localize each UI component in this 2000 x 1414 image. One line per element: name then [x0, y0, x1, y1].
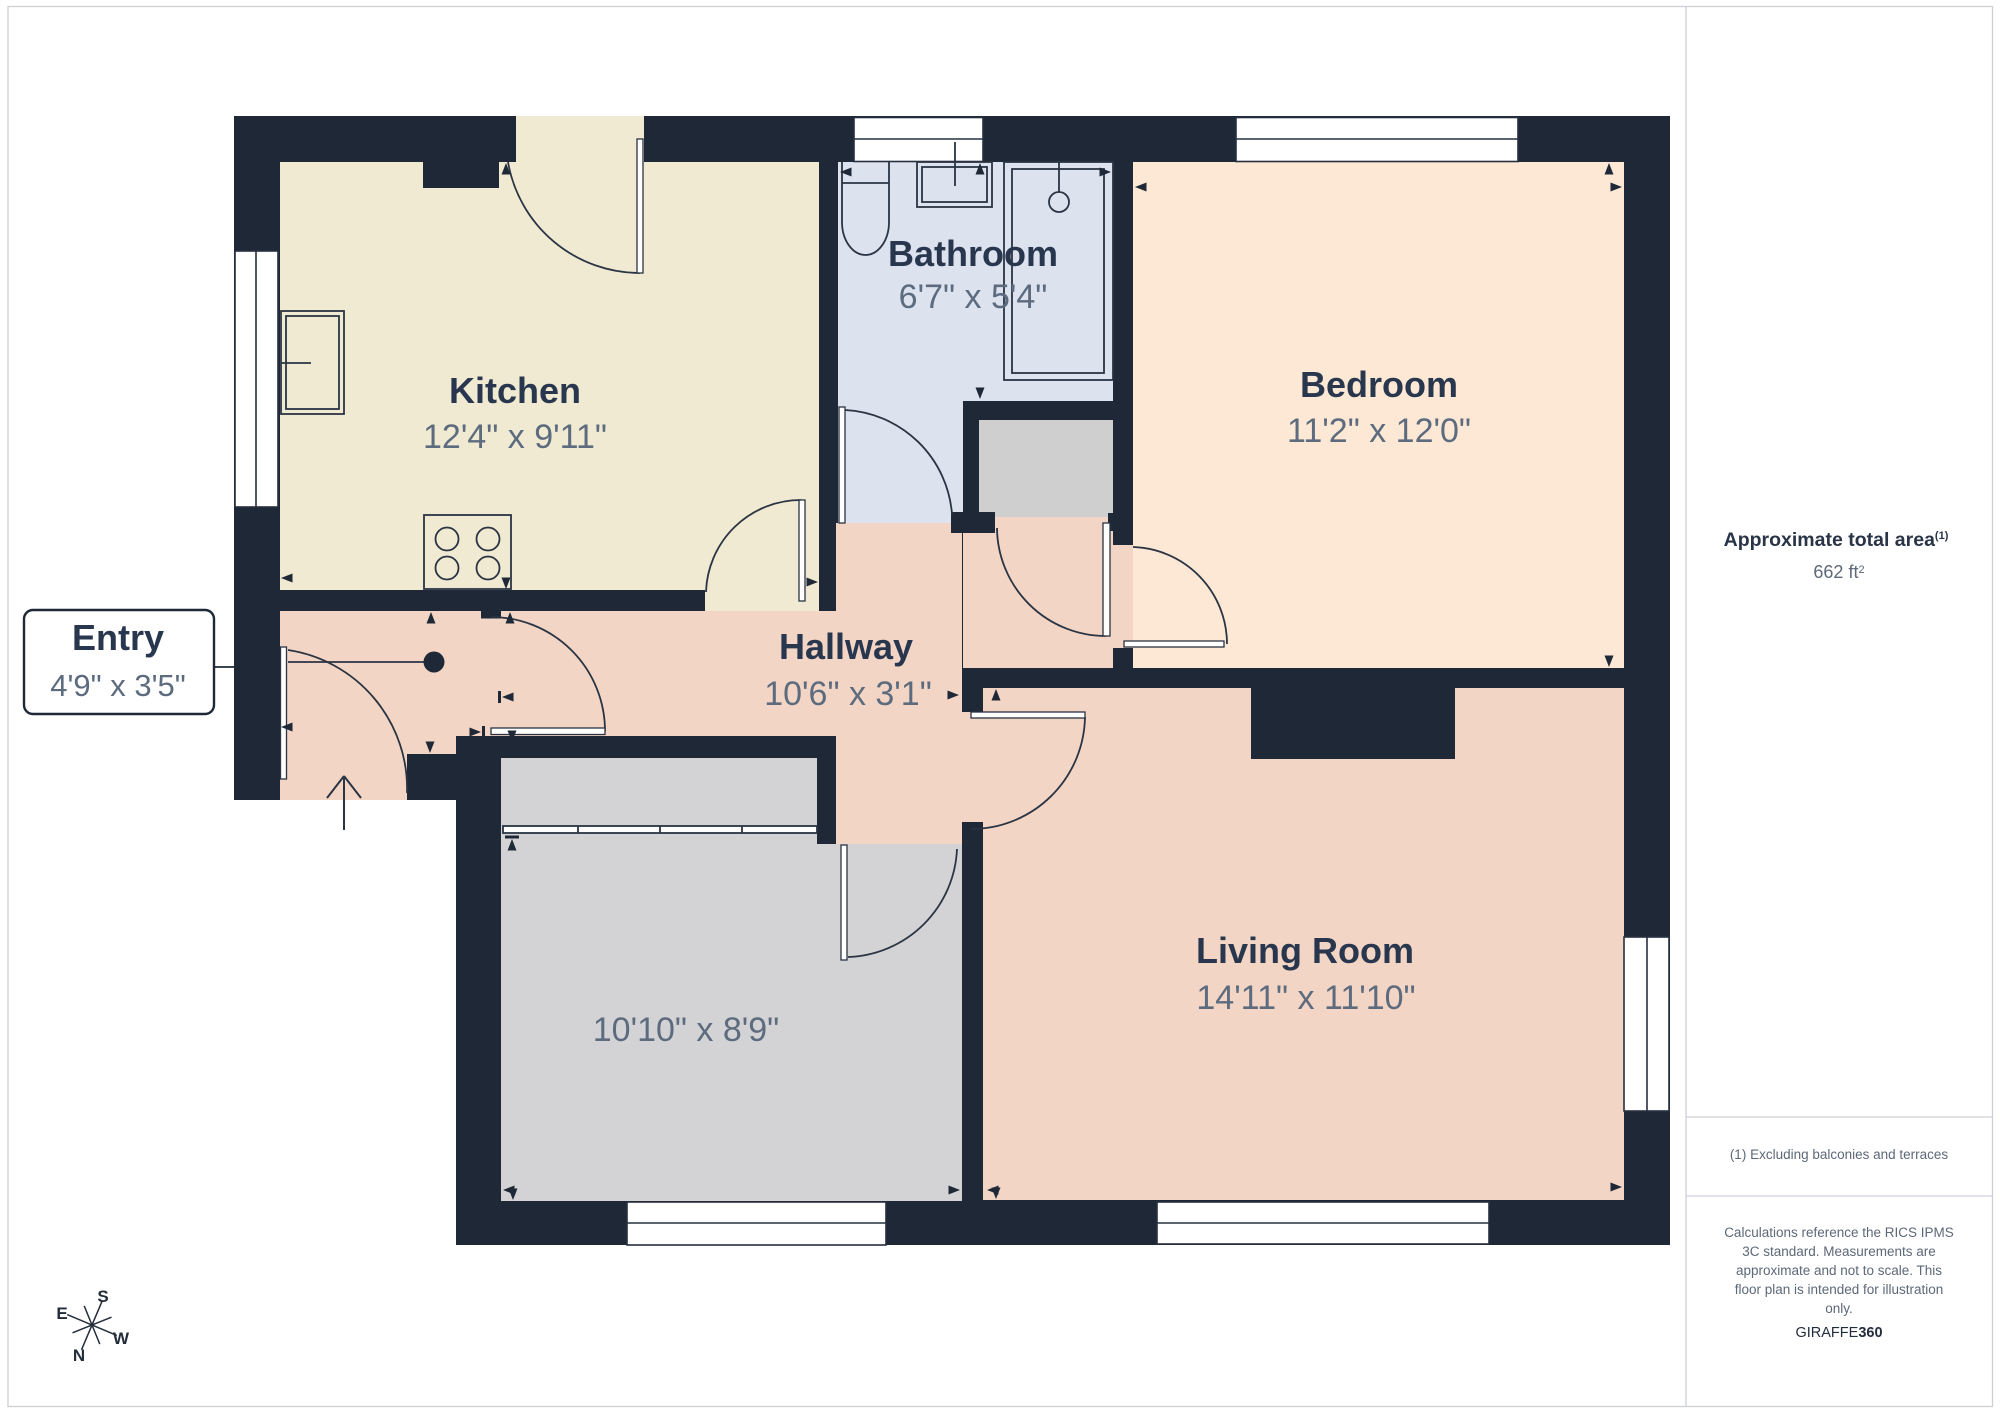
svg-text:GIRAFFE360: GIRAFFE360 [1795, 1325, 1882, 1341]
svg-text:Living Room: Living Room [1196, 930, 1414, 971]
svg-text:Approximate total area(1): Approximate total area(1) [1724, 529, 1949, 551]
svg-text:3C standard. Measurements are: 3C standard. Measurements are [1742, 1244, 1936, 1259]
svg-text:11'2" x 12'0": 11'2" x 12'0" [1287, 412, 1471, 450]
svg-text:(1) Excluding balconies and te: (1) Excluding balconies and terraces [1730, 1147, 1949, 1162]
svg-text:14'11" x 11'10": 14'11" x 11'10" [1196, 979, 1415, 1017]
svg-text:Calculations reference the RIC: Calculations reference the RICS IPMS [1724, 1225, 1954, 1240]
svg-text:Entry: Entry [72, 617, 164, 658]
svg-text:floor plan is intended for ill: floor plan is intended for illustration [1735, 1282, 1944, 1297]
svg-text:4'9" x 3'5": 4'9" x 3'5" [50, 668, 186, 703]
svg-text:S: S [97, 1287, 108, 1306]
svg-text:6'7" x 5'4": 6'7" x 5'4" [899, 278, 1048, 316]
svg-text:approximate and not to scale.: approximate and not to scale. This [1736, 1263, 1942, 1278]
svg-text:10'6" x 3'1": 10'6" x 3'1" [764, 675, 932, 713]
svg-text:10'10" x 8'9": 10'10" x 8'9" [593, 1011, 779, 1049]
svg-text:N: N [73, 1346, 85, 1365]
svg-text:662 ft2: 662 ft2 [1813, 562, 1864, 582]
svg-text:only.: only. [1825, 1301, 1853, 1316]
svg-text:Hallway: Hallway [779, 626, 913, 667]
svg-text:Bathroom: Bathroom [888, 233, 1058, 274]
svg-text:W: W [113, 1329, 130, 1348]
svg-text:12'4" x 9'11": 12'4" x 9'11" [423, 418, 607, 456]
svg-text:Kitchen: Kitchen [449, 370, 581, 411]
svg-text:Bedroom: Bedroom [1300, 364, 1458, 405]
svg-text:E: E [56, 1304, 67, 1323]
